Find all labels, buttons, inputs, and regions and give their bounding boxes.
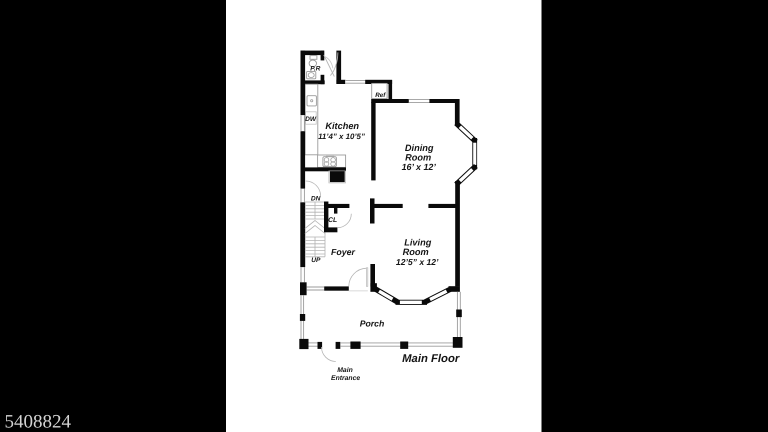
- svg-text:Kitchen: Kitchen: [325, 121, 359, 131]
- svg-text:Ref: Ref: [375, 92, 386, 99]
- svg-text:DW: DW: [305, 116, 317, 123]
- svg-text:5408824: 5408824: [5, 412, 72, 432]
- svg-text:16’ x 12’: 16’ x 12’: [402, 162, 437, 172]
- svg-text:Main: Main: [337, 367, 352, 374]
- svg-text:12’5” x 12’: 12’5” x 12’: [396, 257, 439, 267]
- svg-text:Dining: Dining: [405, 143, 434, 153]
- svg-text:Entrance: Entrance: [331, 375, 360, 382]
- svg-text:Room: Room: [403, 247, 429, 257]
- svg-text:DN: DN: [311, 195, 321, 202]
- svg-text:Room: Room: [405, 152, 431, 162]
- svg-text:CL: CL: [328, 217, 337, 224]
- svg-text:Porch: Porch: [360, 318, 385, 328]
- svg-text:P.R: P.R: [310, 66, 320, 73]
- svg-text:UP: UP: [311, 257, 321, 264]
- svg-text:11’4” x 10’5”: 11’4” x 10’5”: [318, 132, 365, 141]
- svg-text:Living: Living: [404, 238, 431, 248]
- svg-text:Main Floor: Main Floor: [402, 353, 460, 365]
- svg-text:Foyer: Foyer: [331, 247, 356, 257]
